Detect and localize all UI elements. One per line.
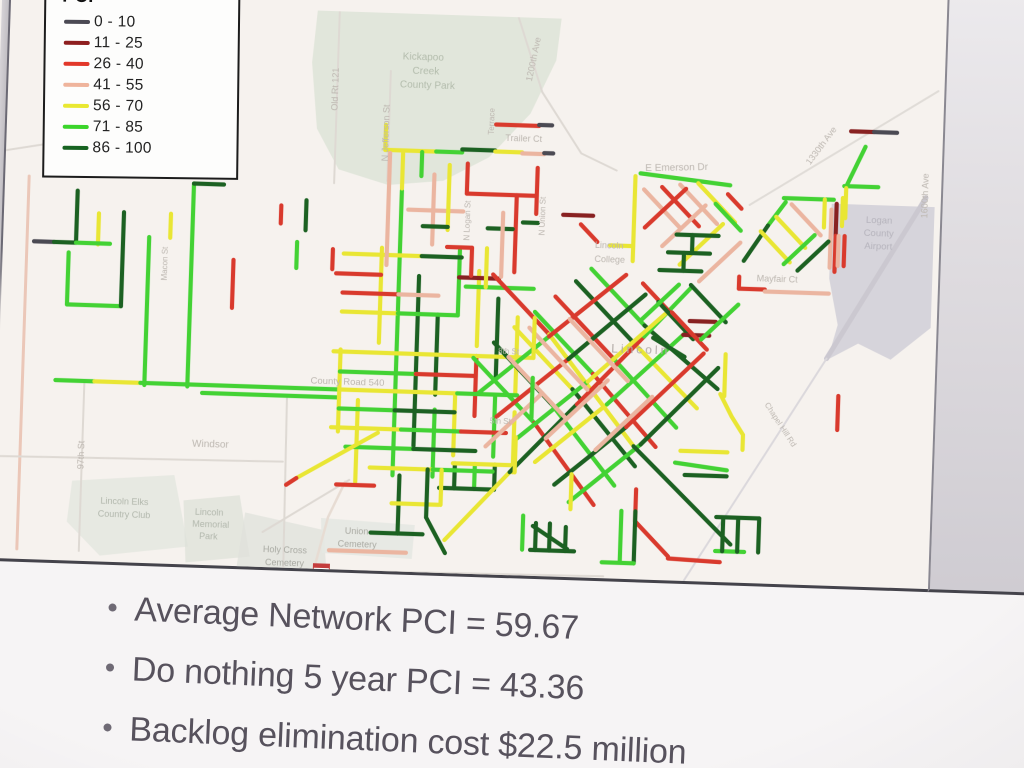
map-label: N Jefferson St: [380, 104, 392, 162]
road-segment-k5: [67, 304, 121, 306]
road-segment-k5: [340, 371, 416, 374]
road-segment-k4: [533, 318, 534, 358]
road-segment-k5: [602, 562, 634, 563]
road-segment-k4: [845, 188, 846, 218]
road-segment-k2: [668, 558, 720, 562]
road-segment-k3: [398, 294, 438, 295]
map-label: College: [594, 254, 625, 265]
road-segment-k6: [659, 270, 701, 271]
road-segment-k5: [466, 287, 534, 289]
map-label: E Emerson Dr: [645, 162, 709, 174]
map-label: Windsor: [192, 439, 230, 451]
road-segment-k2: [727, 194, 741, 208]
road-segment-k5: [436, 152, 462, 153]
road-segment-k3: [791, 204, 822, 235]
road-segment-k4: [453, 463, 515, 465]
road-segment-k6: [395, 410, 455, 412]
road-segment-k4: [633, 176, 636, 261]
road-segment-k4: [334, 351, 437, 354]
road-segment-k4: [477, 271, 479, 346]
legend-color-swatch: [64, 40, 90, 44]
legend-range-label: 56 - 70: [93, 97, 144, 116]
road-segment-k3: [838, 236, 839, 266]
legend-entry-26-40: 26 - 40: [63, 53, 237, 76]
road-segment-k6: [454, 463, 455, 488]
road-segment-k2: [496, 125, 539, 126]
road-segment-k4: [98, 213, 99, 244]
map-label: Terrace: [487, 107, 497, 135]
legend-color-swatch: [63, 124, 89, 128]
map-label: Creek: [412, 66, 440, 78]
road-segment-k5: [620, 511, 622, 561]
road-segment-k2: [332, 249, 333, 269]
road-segment-k4: [342, 312, 398, 314]
road-segment-k5: [187, 184, 194, 387]
road-segment-k3: [522, 153, 544, 154]
road-segment-k4: [370, 468, 433, 470]
bullet-icon: [103, 723, 111, 731]
map-label: Old Rt 121: [330, 67, 341, 110]
road-segment-k6: [194, 184, 224, 185]
map-label: Cemetery: [265, 557, 305, 568]
road-segment-k4: [680, 451, 727, 453]
road-segment-k5: [401, 430, 461, 432]
road-segment-k5: [522, 516, 523, 550]
road-segment-k4: [719, 394, 745, 450]
road-segment-k6: [692, 235, 693, 253]
road-segment-k5: [432, 410, 434, 477]
legend-range-label: 26 - 40: [93, 55, 144, 74]
road-segment-k2: [232, 260, 234, 308]
legend-entry-11-25: 11 - 25: [64, 32, 238, 55]
bullet-do-nothing-pci: Do nothing 5 year PCI = 43.36: [105, 649, 690, 712]
road-segment-k2: [336, 484, 374, 485]
road-segment-k5: [55, 380, 94, 381]
map-label: Airport: [864, 241, 893, 253]
road-segment-k6: [423, 226, 448, 227]
road-segment-k4: [680, 223, 723, 266]
map-label: Macon St: [160, 246, 170, 281]
road-segment-k4: [402, 153, 403, 188]
map-label: Lincoln: [595, 240, 624, 251]
road-segment-k2: [834, 236, 835, 272]
road-segment-k3: [830, 210, 832, 268]
road-segment-k6: [690, 285, 727, 322]
road-segment-k4: [842, 198, 843, 226]
map-label: Trailer Ct: [505, 133, 542, 144]
map-label: 1600th Ave: [919, 173, 930, 218]
road-segment-k5: [844, 186, 878, 187]
shield-number: 55: [317, 570, 326, 579]
road-segment-k3: [699, 241, 740, 282]
road-segment-k5: [675, 463, 727, 471]
legend-range-label: 11 - 25: [94, 34, 143, 53]
road-segment-k5: [202, 393, 339, 398]
road-segment-k4: [724, 354, 725, 396]
map-label: Holy Cross: [263, 544, 308, 555]
road-segment-k5: [76, 243, 110, 244]
road-segment-k1: [459, 277, 499, 278]
road-segment-k4: [453, 395, 455, 455]
road-segment-k4: [495, 152, 522, 153]
map-label: Lincoln Elks: [100, 496, 149, 508]
road-segment-k4: [448, 165, 450, 230]
road-segment-k6: [462, 149, 495, 150]
road-segment-k5: [847, 146, 865, 185]
road-segment-k1: [836, 204, 837, 236]
road-segment-k2: [474, 356, 476, 416]
road-segment-k0: [874, 132, 897, 133]
road-segment-k6: [422, 256, 462, 257]
road-segment-k5: [392, 190, 401, 475]
road-segment-k4: [515, 437, 516, 472]
bullet-average-pci: Average Network PCI = 59.67: [108, 589, 693, 652]
road-segment-k6: [496, 299, 499, 377]
legend-entry-86-100: 86 - 100: [62, 137, 236, 160]
map-label: Logan: [866, 215, 893, 227]
legend-color-swatch: [63, 103, 89, 107]
road-segment-k3: [501, 213, 503, 277]
map-label: Lincoln: [195, 507, 224, 518]
legend-entry-56-70: 56 - 70: [63, 95, 237, 118]
map-label: Mayfair Ct: [757, 273, 799, 284]
road-segment-k4: [296, 430, 378, 481]
basemap-road: [17, 176, 29, 549]
basemap-road: [0, 452, 283, 466]
road-segment-k6: [737, 520, 738, 552]
road-segment-k5: [640, 173, 730, 185]
road-segment-k5: [144, 237, 149, 385]
road-segment-k3: [329, 550, 406, 553]
map-label: Cemetery: [337, 538, 377, 549]
legend-color-swatch: [64, 19, 90, 23]
road-segment-k6: [722, 519, 723, 551]
legend-color-swatch: [62, 145, 88, 149]
road-segment-k6: [425, 517, 446, 553]
road-segment-k5: [339, 408, 395, 410]
road-segment-k2: [532, 423, 597, 505]
map-label: Country Club: [98, 509, 151, 521]
road-segment-k6: [634, 511, 636, 563]
road-segment-k4: [94, 381, 140, 383]
road-segment-k4: [570, 474, 571, 509]
pci-legend: PCI 0 - 1011 - 2526 - 4041 - 5556 - 7071…: [42, 0, 240, 180]
basemap-road: [681, 354, 827, 589]
bullet-do-nothing-pci-text: Do nothing 5 year PCI = 43.36: [131, 650, 585, 708]
legend-entry-0-10: 0 - 10: [64, 11, 238, 34]
road-segment-k5: [398, 313, 458, 315]
map-label: Park: [199, 531, 218, 542]
road-segment-k6: [306, 200, 307, 230]
road-segment-k6: [413, 449, 475, 451]
road-segment-k6: [677, 235, 719, 236]
shield-band: [313, 564, 329, 569]
road-segment-k5: [569, 442, 641, 504]
road-segment-k2: [286, 478, 296, 485]
road-segment-k3: [765, 292, 829, 294]
road-segment-k0: [34, 241, 54, 242]
legend-title: PCI: [62, 0, 238, 9]
legend-range-label: 41 - 55: [93, 76, 144, 95]
road-segment-k5: [474, 464, 475, 489]
bullet-average-pci-text: Average Network PCI = 59.67: [134, 590, 580, 648]
road-segment-k6: [488, 228, 513, 229]
map-label: County: [864, 228, 895, 240]
road-segment-k2: [281, 205, 282, 223]
road-segment-k2: [416, 374, 476, 376]
map-label: 8th St: [498, 347, 520, 357]
road-segment-k4: [441, 470, 442, 505]
bullet-backlog-cost: Backlog elimination cost $22.5 million: [103, 709, 688, 768]
road-segment-k6: [685, 475, 727, 476]
road-segment-k5: [67, 252, 69, 304]
road-segment-k4: [486, 248, 487, 287]
road-segment-k1: [563, 215, 593, 216]
road-segment-k5: [296, 242, 297, 268]
road-segment-k6: [413, 276, 419, 446]
road-segment-k6: [426, 469, 428, 517]
road-segment-k6: [668, 252, 710, 253]
map-label: Kickapoo: [403, 51, 445, 63]
road-segment-k5: [531, 378, 532, 418]
map-label: County Park: [400, 79, 456, 92]
road-segment-k5: [715, 551, 744, 552]
road-segment-k2: [671, 312, 708, 349]
road-segment-k6: [121, 212, 124, 306]
road-segment-k4: [824, 199, 825, 227]
road-segment-k4: [344, 254, 422, 257]
map-label: Memorial: [192, 519, 229, 530]
legend-range-label: 86 - 100: [92, 139, 151, 158]
legend-entry-71-85: 71 - 85: [63, 116, 237, 139]
map-label: Chapel Hill Rd: [763, 401, 798, 449]
road-segment-k2: [336, 273, 381, 274]
map-label: N Logan St: [462, 200, 472, 241]
road-segment-k2: [837, 396, 838, 430]
road-segment-k2: [634, 521, 669, 556]
road-segment-k5: [493, 397, 495, 457]
legend-range-label: 71 - 85: [93, 118, 144, 137]
road-segment-k3: [408, 210, 463, 212]
route-55-shield: 55: [313, 564, 330, 581]
road-segment-k6: [744, 225, 768, 262]
pci-map-image: Old Rt 121N Jefferson St1200th AveTerrac…: [0, 0, 948, 592]
legend-color-swatch: [63, 61, 89, 65]
road-segment-k6: [758, 518, 759, 552]
road-segment-k2: [471, 248, 472, 276]
road-segment-k5: [421, 152, 422, 176]
road-segment-k6: [76, 191, 78, 243]
map-label: N Union St: [537, 196, 547, 236]
road-segment-k2: [467, 164, 468, 194]
legend-color-swatch: [63, 82, 89, 86]
road-segment-k4: [339, 389, 457, 393]
road-segment-k4: [355, 400, 358, 482]
road-segment-k6: [630, 446, 733, 544]
map-label: 1330th Ave: [804, 125, 839, 167]
road-segment-k2: [467, 194, 537, 196]
road-segment-k4: [760, 231, 791, 262]
slide-photo: Old Rt 121N Jefferson St1200th AveTerrac…: [0, 0, 1024, 768]
map-label: 97th St: [75, 440, 86, 469]
legend-range-label: 0 - 10: [94, 13, 136, 32]
road-segment-k4: [385, 150, 436, 152]
road-segment-k4: [392, 503, 439, 505]
road-segment-k6: [54, 242, 76, 243]
road-segment-k2: [447, 247, 472, 248]
legend-entry-41-55: 41 - 55: [63, 74, 237, 97]
road-segment-k2: [844, 236, 845, 266]
slide-bullet-list: Average Network PCI = 59.67 Do nothing 5…: [102, 589, 692, 768]
road-segment-k2: [342, 293, 398, 295]
map-label: 5th St: [490, 416, 512, 426]
road-segment-k6: [439, 488, 494, 490]
road-segment-k1: [690, 321, 716, 322]
road-segment-k4: [170, 214, 171, 238]
presentation-slide: Old Rt 121N Jefferson St1200th AveTerrac…: [0, 0, 1024, 768]
road-segment-k4: [331, 427, 401, 429]
bullet-icon: [108, 603, 116, 611]
map-label: Union: [345, 526, 369, 537]
legend-rows: 0 - 1011 - 2526 - 4041 - 5556 - 7071 - 8…: [62, 11, 238, 160]
road-segment-k2: [739, 289, 765, 290]
road-segment-k6: [371, 533, 423, 535]
kickapoo-creek-park: [308, 10, 562, 190]
road-segment-k4: [775, 217, 806, 248]
road-segment-k5: [458, 250, 460, 315]
map-label: Lincoln: [611, 341, 670, 357]
bullet-backlog-cost-text: Backlog elimination cost $22.5 million: [129, 710, 688, 768]
road-segment-k1: [851, 131, 874, 132]
road-segment-k6: [683, 253, 684, 271]
bullet-icon: [106, 663, 114, 671]
road-segment-k2: [514, 195, 517, 272]
